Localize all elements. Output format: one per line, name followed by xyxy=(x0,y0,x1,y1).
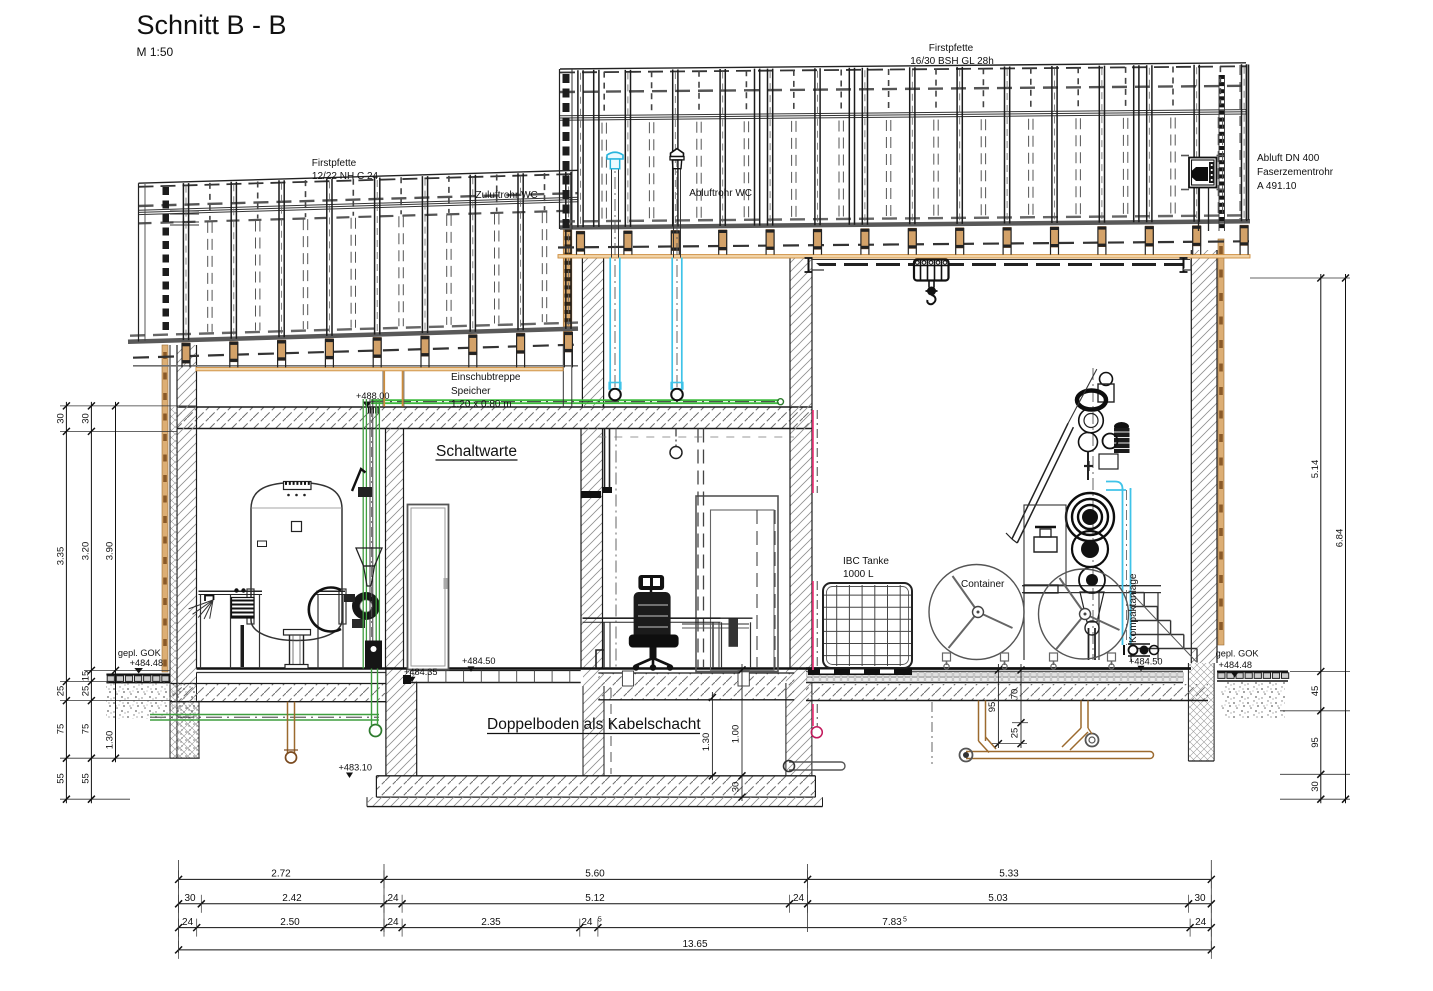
svg-text:24: 24 xyxy=(387,917,399,928)
svg-text:Speicher: Speicher xyxy=(451,386,491,397)
svg-text:A 491.10: A 491.10 xyxy=(1257,181,1297,192)
svg-text:+484.50: +484.50 xyxy=(462,656,495,666)
svg-text:+483.10: +483.10 xyxy=(339,763,372,773)
svg-text:3.90: 3.90 xyxy=(105,542,116,561)
svg-text:16/30 BSH GL 28h: 16/30 BSH GL 28h xyxy=(910,56,994,67)
svg-text:+484.35: +484.35 xyxy=(404,667,437,677)
svg-text:30: 30 xyxy=(184,893,196,904)
svg-text:Schnitt B - B: Schnitt B - B xyxy=(137,10,287,40)
svg-text:6.84: 6.84 xyxy=(1335,529,1346,548)
svg-text:7.83: 7.83 xyxy=(882,917,902,928)
svg-text:24: 24 xyxy=(387,893,399,904)
svg-text:5.60: 5.60 xyxy=(585,869,605,880)
svg-text:2.72: 2.72 xyxy=(271,869,291,880)
svg-text:24: 24 xyxy=(793,893,805,904)
svg-text:2.42: 2.42 xyxy=(282,893,302,904)
svg-text:gepl. GOK: gepl. GOK xyxy=(118,648,162,658)
svg-text:Abluft DN 400: Abluft DN 400 xyxy=(1257,153,1320,164)
svg-text:30: 30 xyxy=(1194,893,1206,904)
svg-text:Zuluftrohr WC: Zuluftrohr WC xyxy=(476,190,538,201)
svg-text:5.12: 5.12 xyxy=(585,893,605,904)
svg-text:5.33: 5.33 xyxy=(999,869,1019,880)
svg-text:3.35: 3.35 xyxy=(55,547,66,566)
svg-text:12/22 NH C 24: 12/22 NH C 24 xyxy=(312,171,379,182)
svg-text:13.65: 13.65 xyxy=(682,939,707,950)
svg-text:95: 95 xyxy=(987,702,998,713)
svg-text:2.35: 2.35 xyxy=(481,917,501,928)
svg-text:Schaltwarte: Schaltwarte xyxy=(436,443,517,460)
svg-text:24: 24 xyxy=(581,917,593,928)
svg-text:1.30: 1.30 xyxy=(105,731,116,750)
svg-text:75: 75 xyxy=(55,724,66,735)
svg-text:1000 L: 1000 L xyxy=(843,569,874,580)
svg-text:Einschubtreppe: Einschubtreppe xyxy=(451,372,521,383)
svg-text:Abluftrohr WC: Abluftrohr WC xyxy=(689,188,752,199)
svg-text:Kompaktanlage: Kompaktanlage xyxy=(1128,573,1139,643)
svg-text:5.03: 5.03 xyxy=(988,893,1008,904)
svg-text:75: 75 xyxy=(80,724,91,735)
svg-text:+484.50: +484.50 xyxy=(1129,656,1162,666)
svg-text:30: 30 xyxy=(80,413,91,424)
svg-text:45: 45 xyxy=(1310,686,1321,697)
svg-text:+488.00: +488.00 xyxy=(356,391,389,401)
svg-text:25: 25 xyxy=(80,686,91,697)
svg-text:5: 5 xyxy=(903,917,907,924)
svg-text:24: 24 xyxy=(1195,917,1207,928)
svg-text:30: 30 xyxy=(1310,781,1321,792)
svg-text:95: 95 xyxy=(1310,737,1321,748)
svg-text:1.00: 1.00 xyxy=(731,725,742,744)
svg-text:Doppelboden als Kabelschacht: Doppelboden als Kabelschacht xyxy=(487,716,701,733)
svg-text:25: 25 xyxy=(1010,728,1021,739)
svg-text:25: 25 xyxy=(55,686,66,697)
svg-text:Firstpfette: Firstpfette xyxy=(312,158,357,169)
svg-text:70: 70 xyxy=(1010,689,1021,700)
svg-text:55: 55 xyxy=(80,773,91,784)
svg-text:5: 5 xyxy=(598,917,602,924)
svg-text:M 1:50: M 1:50 xyxy=(137,45,174,59)
svg-text:Firstpfette: Firstpfette xyxy=(929,43,974,54)
svg-text:+484.48: +484.48 xyxy=(1219,660,1252,670)
svg-text:24: 24 xyxy=(182,917,194,928)
svg-text:1.30: 1.30 xyxy=(701,733,712,752)
svg-text:30: 30 xyxy=(55,413,66,424)
svg-text:Faserzementrohr: Faserzementrohr xyxy=(1257,167,1334,178)
svg-text:1.20 x 0.80 m: 1.20 x 0.80 m xyxy=(451,399,512,410)
svg-text:gepl. GOK: gepl. GOK xyxy=(1216,649,1260,659)
svg-text:+484.48: +484.48 xyxy=(130,658,163,668)
svg-text:30: 30 xyxy=(731,782,742,793)
svg-text:Container: Container xyxy=(961,579,1005,590)
svg-text:2.50: 2.50 xyxy=(280,917,300,928)
svg-text:55: 55 xyxy=(55,773,66,784)
svg-text:IBC Tanke: IBC Tanke xyxy=(843,556,889,567)
svg-text:15: 15 xyxy=(80,671,91,682)
svg-text:3.20: 3.20 xyxy=(80,542,91,561)
svg-text:5.14: 5.14 xyxy=(1310,460,1321,479)
